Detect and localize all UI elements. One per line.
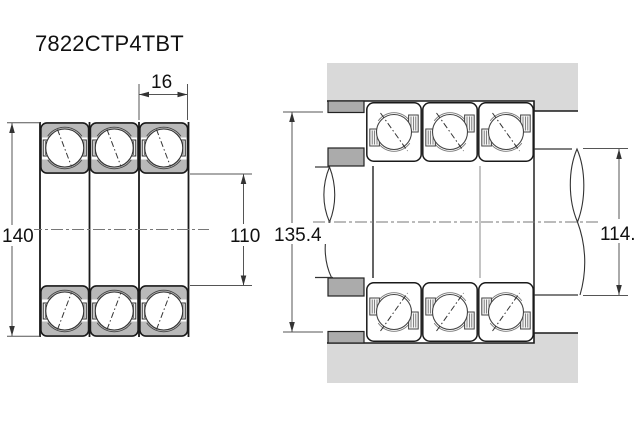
outer-spacer-lower [328,332,364,344]
arrow-down-icon [9,326,15,336]
arrow-up-icon [289,112,295,122]
bearing-section [41,123,89,173]
arrow-down-icon [289,322,295,332]
bearing-section [90,286,138,336]
bearing-section [41,286,89,336]
arrow-down-icon [616,285,622,295]
right-view-mounting-arrangement: 135.4 114. [272,63,640,383]
arrow-up-icon [241,174,247,184]
arrow-down-icon [241,276,247,286]
bearing-section [140,286,188,336]
outer-spacer-upper [328,101,364,113]
shaft-break-right [570,149,584,222]
part-number-title: 7822CTP4TBT [35,31,184,56]
mounted-bearing [479,103,533,161]
dimension-bearing-width: 16 [139,72,188,120]
dim-label-shaft-diameter: 114. [600,224,636,245]
arrow-up-icon [616,149,622,159]
dimension-outer-diameter: 140 [0,123,40,336]
arrow-up-icon [9,123,15,133]
mounted-bearing [479,283,533,341]
dim-label-width: 16 [151,72,172,93]
dim-label-od: 140 [2,226,34,247]
arrow-left-icon [139,92,149,97]
arrow-right-icon [178,92,188,97]
left-view-bearing-set: 140 110 16 [0,72,262,337]
mounted-bearing [423,283,477,341]
mounted-bearing [367,283,421,341]
bearing-technical-drawing: 7822CTP4TBT 140 [0,0,640,440]
inner-spacer-upper [328,148,364,166]
dim-label-spacer-diameter: 135.4 [274,225,322,246]
mounted-bearing [423,103,477,161]
inner-spacer-lower [328,278,364,296]
bearing-section [90,123,138,173]
shaft-break-left [324,167,335,222]
bearing-section [140,123,188,173]
dim-label-bore: 110 [230,226,260,247]
mounted-bearing [367,103,421,161]
technical-drawing-page: 7822CTP4TBT 140 [0,0,640,440]
